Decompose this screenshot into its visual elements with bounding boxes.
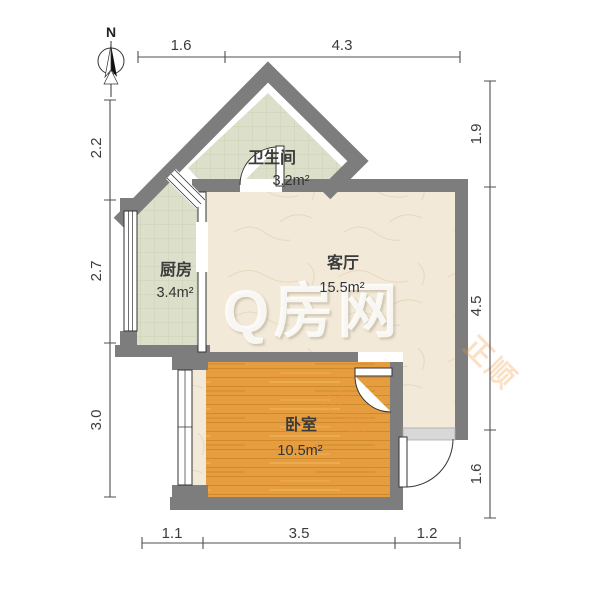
entry-door <box>399 428 455 487</box>
bedroom-window <box>178 370 192 485</box>
bedroom-right-wall <box>390 362 403 510</box>
dim-right-2: 4.5 <box>468 296 485 317</box>
living-name-label: 客厅 <box>327 253 359 272</box>
bedroom-area-label: 10.5m² <box>277 443 322 459</box>
kitchen-bottom-wall <box>115 345 210 357</box>
dim-left-2: 2.7 <box>88 261 105 282</box>
dim-right-3: 1.6 <box>468 464 485 485</box>
north-compass: N <box>98 24 124 97</box>
kitchen-area-label: 3.4m² <box>156 285 193 301</box>
floorplan-page: 正顺 正顺 Q房网 卫生间 3.2m² 厨房 3.4m² 客厅 15.5m² 卧… <box>0 0 600 600</box>
bay-wall-stub-top <box>172 357 208 370</box>
living-top-wall <box>192 179 468 192</box>
bay-window-sill <box>192 370 208 485</box>
bedroom-top-wall <box>198 352 358 362</box>
dim-left-line <box>104 100 116 497</box>
bedroom-name-label: 卧室 <box>285 415 317 434</box>
right-outer-wall <box>455 179 468 440</box>
bay-wall-stub-bottom <box>172 485 208 497</box>
dim-right-line <box>484 81 496 518</box>
living-area-label: 15.5m² <box>319 280 364 296</box>
bathroom-area-label: 3.2m² <box>272 173 309 189</box>
dim-left-3: 3.0 <box>88 410 105 431</box>
entry-threshold <box>403 428 455 440</box>
kitchen-doorway-opening <box>196 222 208 272</box>
bathroom-floor <box>188 93 346 190</box>
north-label: N <box>106 24 116 40</box>
bathroom-name-label: 卫生间 <box>248 148 296 167</box>
dim-bottom-2: 3.5 <box>289 525 310 542</box>
dim-left-1: 2.2 <box>88 138 105 159</box>
kitchen-left-wall-stub-bottom <box>120 331 137 345</box>
dim-bottom-1: 1.1 <box>162 525 183 542</box>
brand-watermark: Q房网 <box>223 278 402 345</box>
dim-bottom-3: 1.2 <box>417 525 438 542</box>
kitchen-window <box>124 211 137 331</box>
floorplan-svg: 正顺 正顺 Q房网 卫生间 3.2m² 厨房 3.4m² 客厅 15.5m² 卧… <box>0 0 600 600</box>
kitchen-left-wall-stub-top <box>120 198 137 211</box>
kitchen-name-label: 厨房 <box>160 260 192 279</box>
dim-top-1: 1.6 <box>171 37 192 54</box>
dim-right-1: 1.9 <box>468 124 485 145</box>
bedroom-bottom-wall <box>170 497 403 510</box>
dim-top-2: 4.3 <box>332 37 353 54</box>
